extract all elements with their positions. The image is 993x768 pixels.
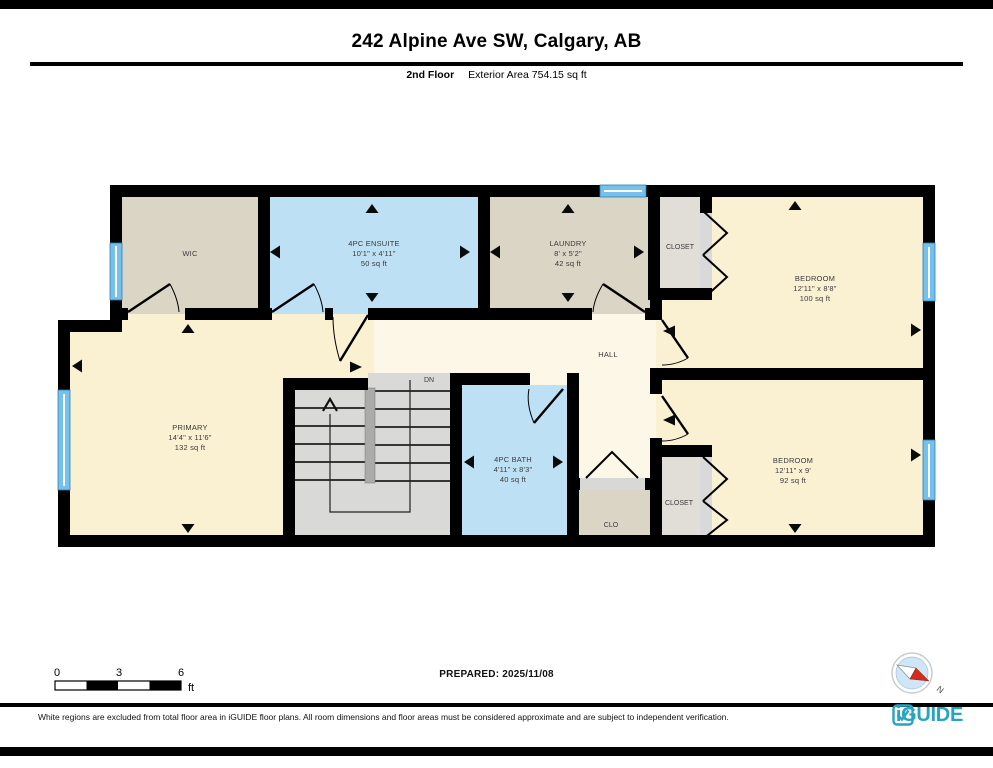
window-bedroom-bottom-right <box>923 440 935 500</box>
label-ensuite-area: 50 sq ft <box>361 259 388 268</box>
footer-divider <box>0 703 993 707</box>
wall-hall-bedroom-mid <box>650 380 662 394</box>
room-clo <box>573 484 656 541</box>
room-bedroom-bottom-entry <box>656 380 712 450</box>
wall-wic-ensuite <box>258 197 270 308</box>
iguide-logo-icon <box>892 704 914 726</box>
room-primary-vestibule <box>283 314 374 384</box>
label-bedroom-top-dims: 12'11" x 8'8" <box>793 284 836 293</box>
floorplan-page: 242 Alpine Ave SW, Calgary, AB 2nd Floor… <box>0 0 993 768</box>
wall-mid-seg-c <box>325 308 333 320</box>
label-laundry-dims: 8' x 5'2" <box>554 249 582 258</box>
iguide-logo: iGUIDE <box>892 704 963 727</box>
closet-top-bifold-track <box>700 213 712 288</box>
label-primary-area: 132 sq ft <box>175 443 206 452</box>
label-ensuite-name: 4PC ENSUITE <box>348 239 399 248</box>
wall-mid-seg-b <box>185 308 272 320</box>
wall-stairs-top <box>283 378 368 390</box>
room-closet-top <box>654 191 706 294</box>
label-bedroom-bottom-dims: 12'11" x 9' <box>775 466 811 475</box>
label-closet-top: CLOSET <box>666 244 695 251</box>
label-clo: CLO <box>604 522 619 529</box>
room-fills <box>64 191 929 541</box>
room-closet-bottom <box>656 451 706 541</box>
bottom-border-bar <box>0 747 993 756</box>
window-bedroom-top-right <box>923 243 935 301</box>
label-hall: HALL <box>598 350 618 359</box>
label-laundry-name: LAUNDRY <box>549 239 586 248</box>
disclaimer-text: White regions are excluded from total fl… <box>38 712 798 722</box>
floor-plan-canvas: WIC 4PC ENSUITE 10'1" x 4'11" 50 sq ft L… <box>0 0 993 768</box>
label-bath-name: 4PC BATH <box>494 455 532 464</box>
wall-stairs-bath <box>450 373 462 535</box>
hall-corridor <box>573 373 656 484</box>
scale-bar-segment <box>87 681 119 690</box>
window-wic-left <box>110 243 122 300</box>
label-bedroom-top-name: BEDROOM <box>795 274 835 283</box>
room-bedroom-top-entry <box>656 300 712 374</box>
label-primary-name: PRIMARY <box>172 423 207 432</box>
label-bedroom-top-area: 100 sq ft <box>800 294 831 303</box>
label-wic: WIC <box>182 249 198 258</box>
wall-laundry-closet <box>648 197 660 300</box>
wall-outer-bottom <box>58 535 935 547</box>
prepared-date: PREPARED: 2025/11/08 <box>0 669 993 680</box>
wall-ensuite-laundry <box>478 197 490 308</box>
label-stairs-dn: DN <box>424 377 434 384</box>
wall-mid-seg-e <box>378 308 592 320</box>
clo-bifold-track <box>580 478 645 490</box>
wall-outer-top <box>110 185 935 197</box>
compass-north-label: N <box>935 684 946 696</box>
wall-clo-stub-left <box>573 478 580 490</box>
wall-between-bedrooms <box>650 368 935 380</box>
scale-unit: ft <box>188 682 194 694</box>
room-bedroom-bottom <box>706 374 929 541</box>
stairwell-entry <box>368 373 450 392</box>
wall-bifold-top-stub <box>700 197 712 213</box>
window-top <box>600 185 646 197</box>
wall-bath-right <box>567 373 579 535</box>
window-primary-left <box>58 390 70 490</box>
wall-bath-top <box>462 373 530 385</box>
wall-clo-stub-right <box>645 478 656 490</box>
closet-bottom-bifold-track <box>700 457 712 535</box>
label-bedroom-bottom-name: BEDROOM <box>773 456 813 465</box>
stair-divider <box>365 388 375 483</box>
label-laundry-area: 42 sq ft <box>555 259 582 268</box>
wall-stairs-left <box>283 378 295 535</box>
label-bath-area: 40 sq ft <box>500 475 527 484</box>
wall-hall-bedroom-upper <box>650 300 662 318</box>
label-ensuite-dims: 10'1" x 4'11" <box>352 249 395 258</box>
label-closet-bottom: CLOSET <box>665 500 694 507</box>
wall-bifold-bottom-stub <box>700 445 712 457</box>
label-primary-dims: 14'4" x 11'6" <box>168 433 211 442</box>
wall-mid-seg-d <box>368 308 378 320</box>
label-bedroom-bottom-area: 92 sq ft <box>780 476 807 485</box>
label-bath-dims: 4'11" x 8'3" <box>494 465 533 474</box>
scale-bar-segment <box>150 681 182 690</box>
wall-mid-seg-a <box>110 308 128 320</box>
